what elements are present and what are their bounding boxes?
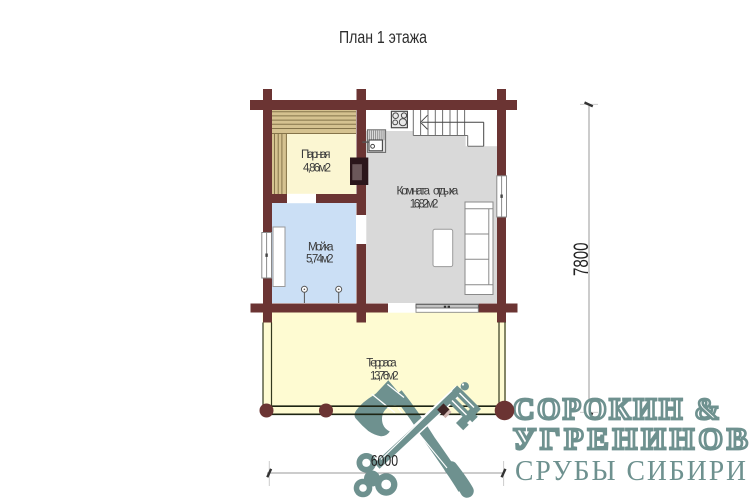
svg-text:Мойка: Мойка (308, 241, 334, 253)
svg-text:16,82м2: 16,82м2 (410, 199, 439, 211)
svg-text:СРУБЫ СИБИРИ: СРУБЫ СИБИРИ (515, 456, 748, 487)
svg-text:7800: 7800 (569, 243, 593, 277)
svg-text:6000: 6000 (371, 453, 399, 470)
svg-text:План 1 этажа: План 1 этажа (339, 27, 427, 47)
svg-text:4,86м2: 4,86м2 (303, 162, 331, 174)
svg-text:УГРЕНИНОВ: УГРЕНИНОВ (513, 421, 752, 456)
svg-text:Комната: Комната (397, 186, 431, 198)
svg-text:13,76м2: 13,76м2 (370, 371, 399, 383)
svg-text:Парная: Парная (301, 149, 331, 161)
svg-text:отдыха: отдыха (433, 186, 459, 198)
svg-text:Терраса: Терраса (366, 357, 397, 369)
svg-text:5,74м2: 5,74м2 (306, 254, 334, 266)
